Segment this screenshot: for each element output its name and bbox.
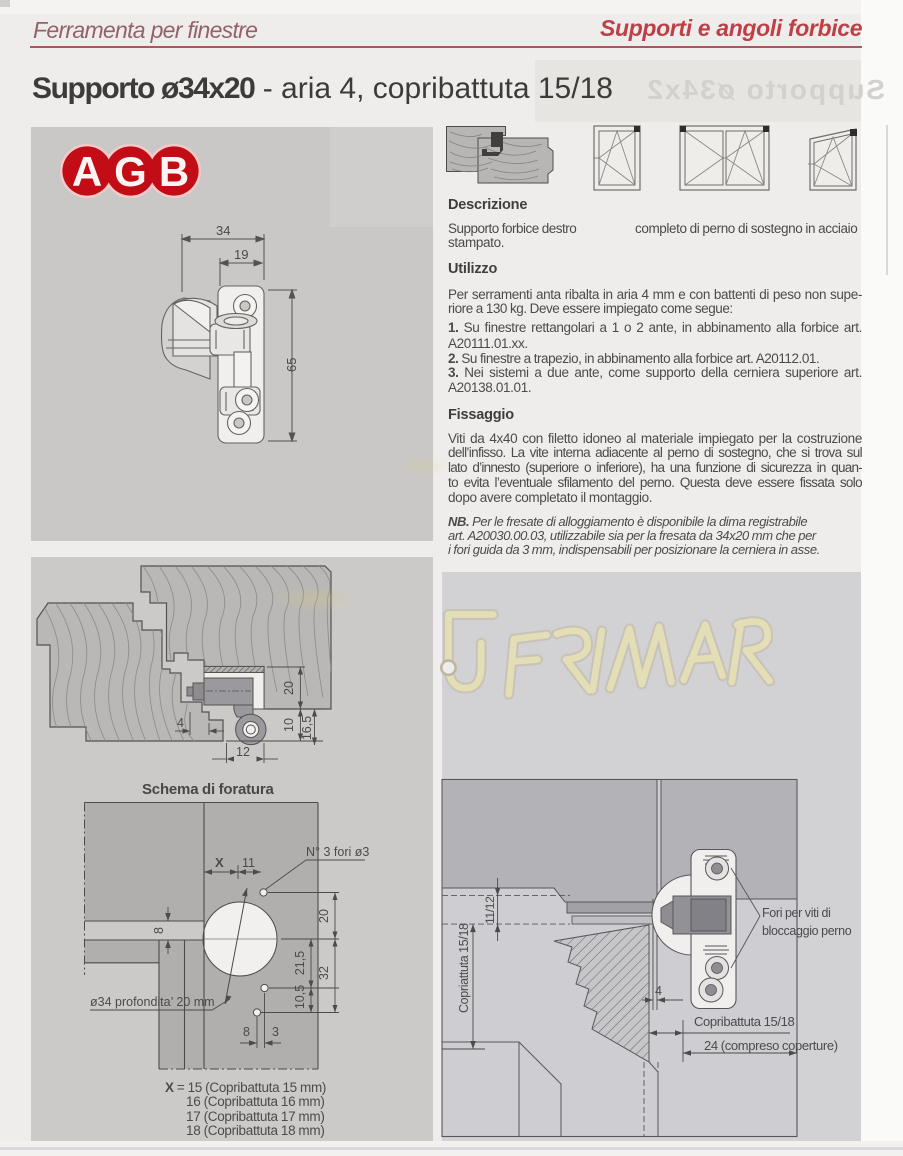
svg-text:20: 20 [282, 681, 296, 695]
svg-text:3: 3 [272, 1025, 279, 1039]
svg-text:65: 65 [284, 358, 299, 372]
svg-text:10: 10 [282, 718, 296, 732]
svg-text:8: 8 [152, 927, 166, 934]
svg-text:10,5: 10,5 [293, 985, 307, 1009]
svg-text:12: 12 [236, 745, 250, 759]
svg-text:B: B [159, 148, 189, 195]
svg-text:A: A [72, 148, 102, 195]
svg-text:19: 19 [234, 247, 248, 262]
svg-text:34: 34 [216, 223, 230, 238]
svg-text:4: 4 [177, 716, 184, 730]
svg-text:16,5: 16,5 [300, 716, 314, 740]
svg-text:G: G [114, 148, 147, 195]
svg-text:ø34 profondita’ 20 mm: ø34 profondita’ 20 mm [90, 995, 215, 1009]
svg-text:11: 11 [242, 856, 255, 870]
svg-text:8: 8 [243, 1025, 250, 1039]
svg-text:20: 20 [317, 909, 331, 923]
svg-text:X: X [215, 855, 224, 870]
svg-text:21,5: 21,5 [293, 951, 307, 975]
svg-text:32: 32 [317, 966, 331, 980]
svg-text:N° 3 fori ø3: N° 3 fori ø3 [306, 845, 369, 859]
